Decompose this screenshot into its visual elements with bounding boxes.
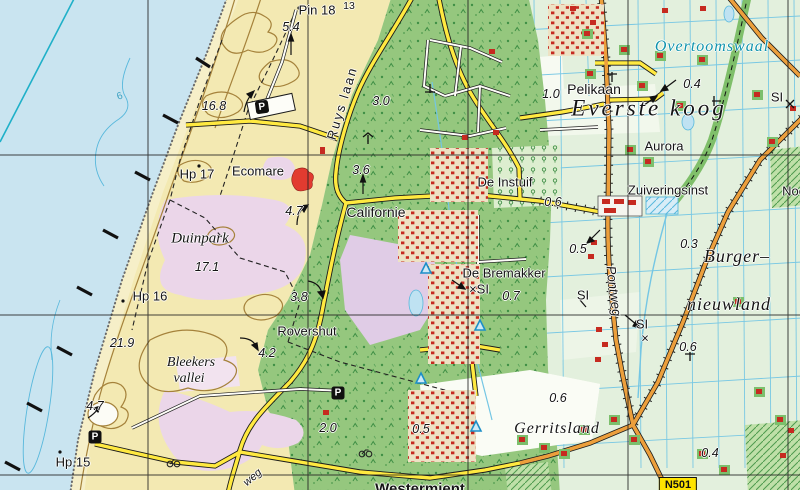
label-overtoomswaal: Overtoomswaal <box>655 39 769 55</box>
spot-height-0-5-a: 0.5 <box>569 243 586 256</box>
spot-height-16-8: 16.8 <box>202 100 226 113</box>
label-ecomare: Ecomare <box>232 165 284 178</box>
label-aurora: Aurora <box>644 140 683 153</box>
label-zuiveringsinst: Zuiveringsinst <box>628 184 708 197</box>
parking-icon-south: P <box>89 431 102 444</box>
spot-height-0-5-b: 0.5 <box>412 423 429 436</box>
spot-height-3-6: 3.6 <box>352 164 369 177</box>
spot-height-21-9: 21.9 <box>110 337 134 350</box>
spot-height-0-6-b: 0.6 <box>679 341 696 354</box>
label-burger: Burger– <box>704 247 770 265</box>
label-rovershut: Rovershut <box>277 325 336 338</box>
label-hp17: Hp 17 <box>180 168 215 181</box>
spot-height-3-0: 3.0 <box>372 95 389 108</box>
label-hp15: Hp 15 <box>56 456 91 469</box>
spot-height-0-7: 0.7 <box>502 290 519 303</box>
label-si-west: SI <box>577 289 589 302</box>
spot-height-1-0: 1.0 <box>542 88 559 101</box>
label-bleekers: Bleekers <box>167 356 215 370</box>
label-x-si-bremakker: ×SI <box>469 283 489 296</box>
label-height-13: 13 <box>343 1 355 12</box>
topographic-map[interactable]: Pin 18 13 5.4 Overtoomswaal Pelikaan 1.0… <box>0 0 800 490</box>
parking-icon-north: P <box>255 100 270 115</box>
spot-height-2-0: 2.0 <box>319 422 336 435</box>
label-vallei: vallei <box>173 372 204 386</box>
spot-height-0-6-a: 0.6 <box>544 196 561 209</box>
label-nieuwland: nieuwland <box>687 295 771 313</box>
spot-height-0-3: 0.3 <box>680 238 697 251</box>
spot-height-3-8: 3.8 <box>290 291 307 304</box>
label-si-mid: SI <box>636 318 648 331</box>
label-everste-koog: Everste koog <box>571 97 726 120</box>
spot-height-5-4: 5.4 <box>282 21 299 34</box>
spot-height-4-7-dune: 4.7 <box>285 205 302 218</box>
label-si-north: SI <box>771 91 783 104</box>
label-x-mark: × <box>641 332 649 345</box>
road-shield-n501: N501 <box>659 477 697 490</box>
spot-height-0-4-south: 0.4 <box>701 447 718 460</box>
spot-height-0-6-c: 0.6 <box>549 392 566 405</box>
label-pin-18: Pin 18 <box>299 4 336 17</box>
label-de-instuif: De Instuif <box>478 176 533 189</box>
label-gerritsland: Gerritsland <box>514 421 600 437</box>
spot-height-0-4-north: 0.4 <box>683 78 700 91</box>
spot-height-4-2: 4.2 <box>258 347 275 360</box>
label-pelikaan: Pelikaan <box>567 82 621 96</box>
parking-icon-mid: P <box>332 387 345 400</box>
label-hp16: Hp 16 <box>133 290 168 303</box>
spot-height-4-7-south: 4.7 <box>86 400 103 413</box>
label-duinpark: Duinpark <box>171 232 229 247</box>
spot-height-17-1: 17.1 <box>195 261 219 274</box>
label-westermient: Westermient <box>375 482 465 490</box>
label-californie: Californie <box>346 205 405 219</box>
label-de-bremakker: De Bremakker <box>462 267 545 280</box>
label-noo-cut: Noo <box>782 185 800 198</box>
